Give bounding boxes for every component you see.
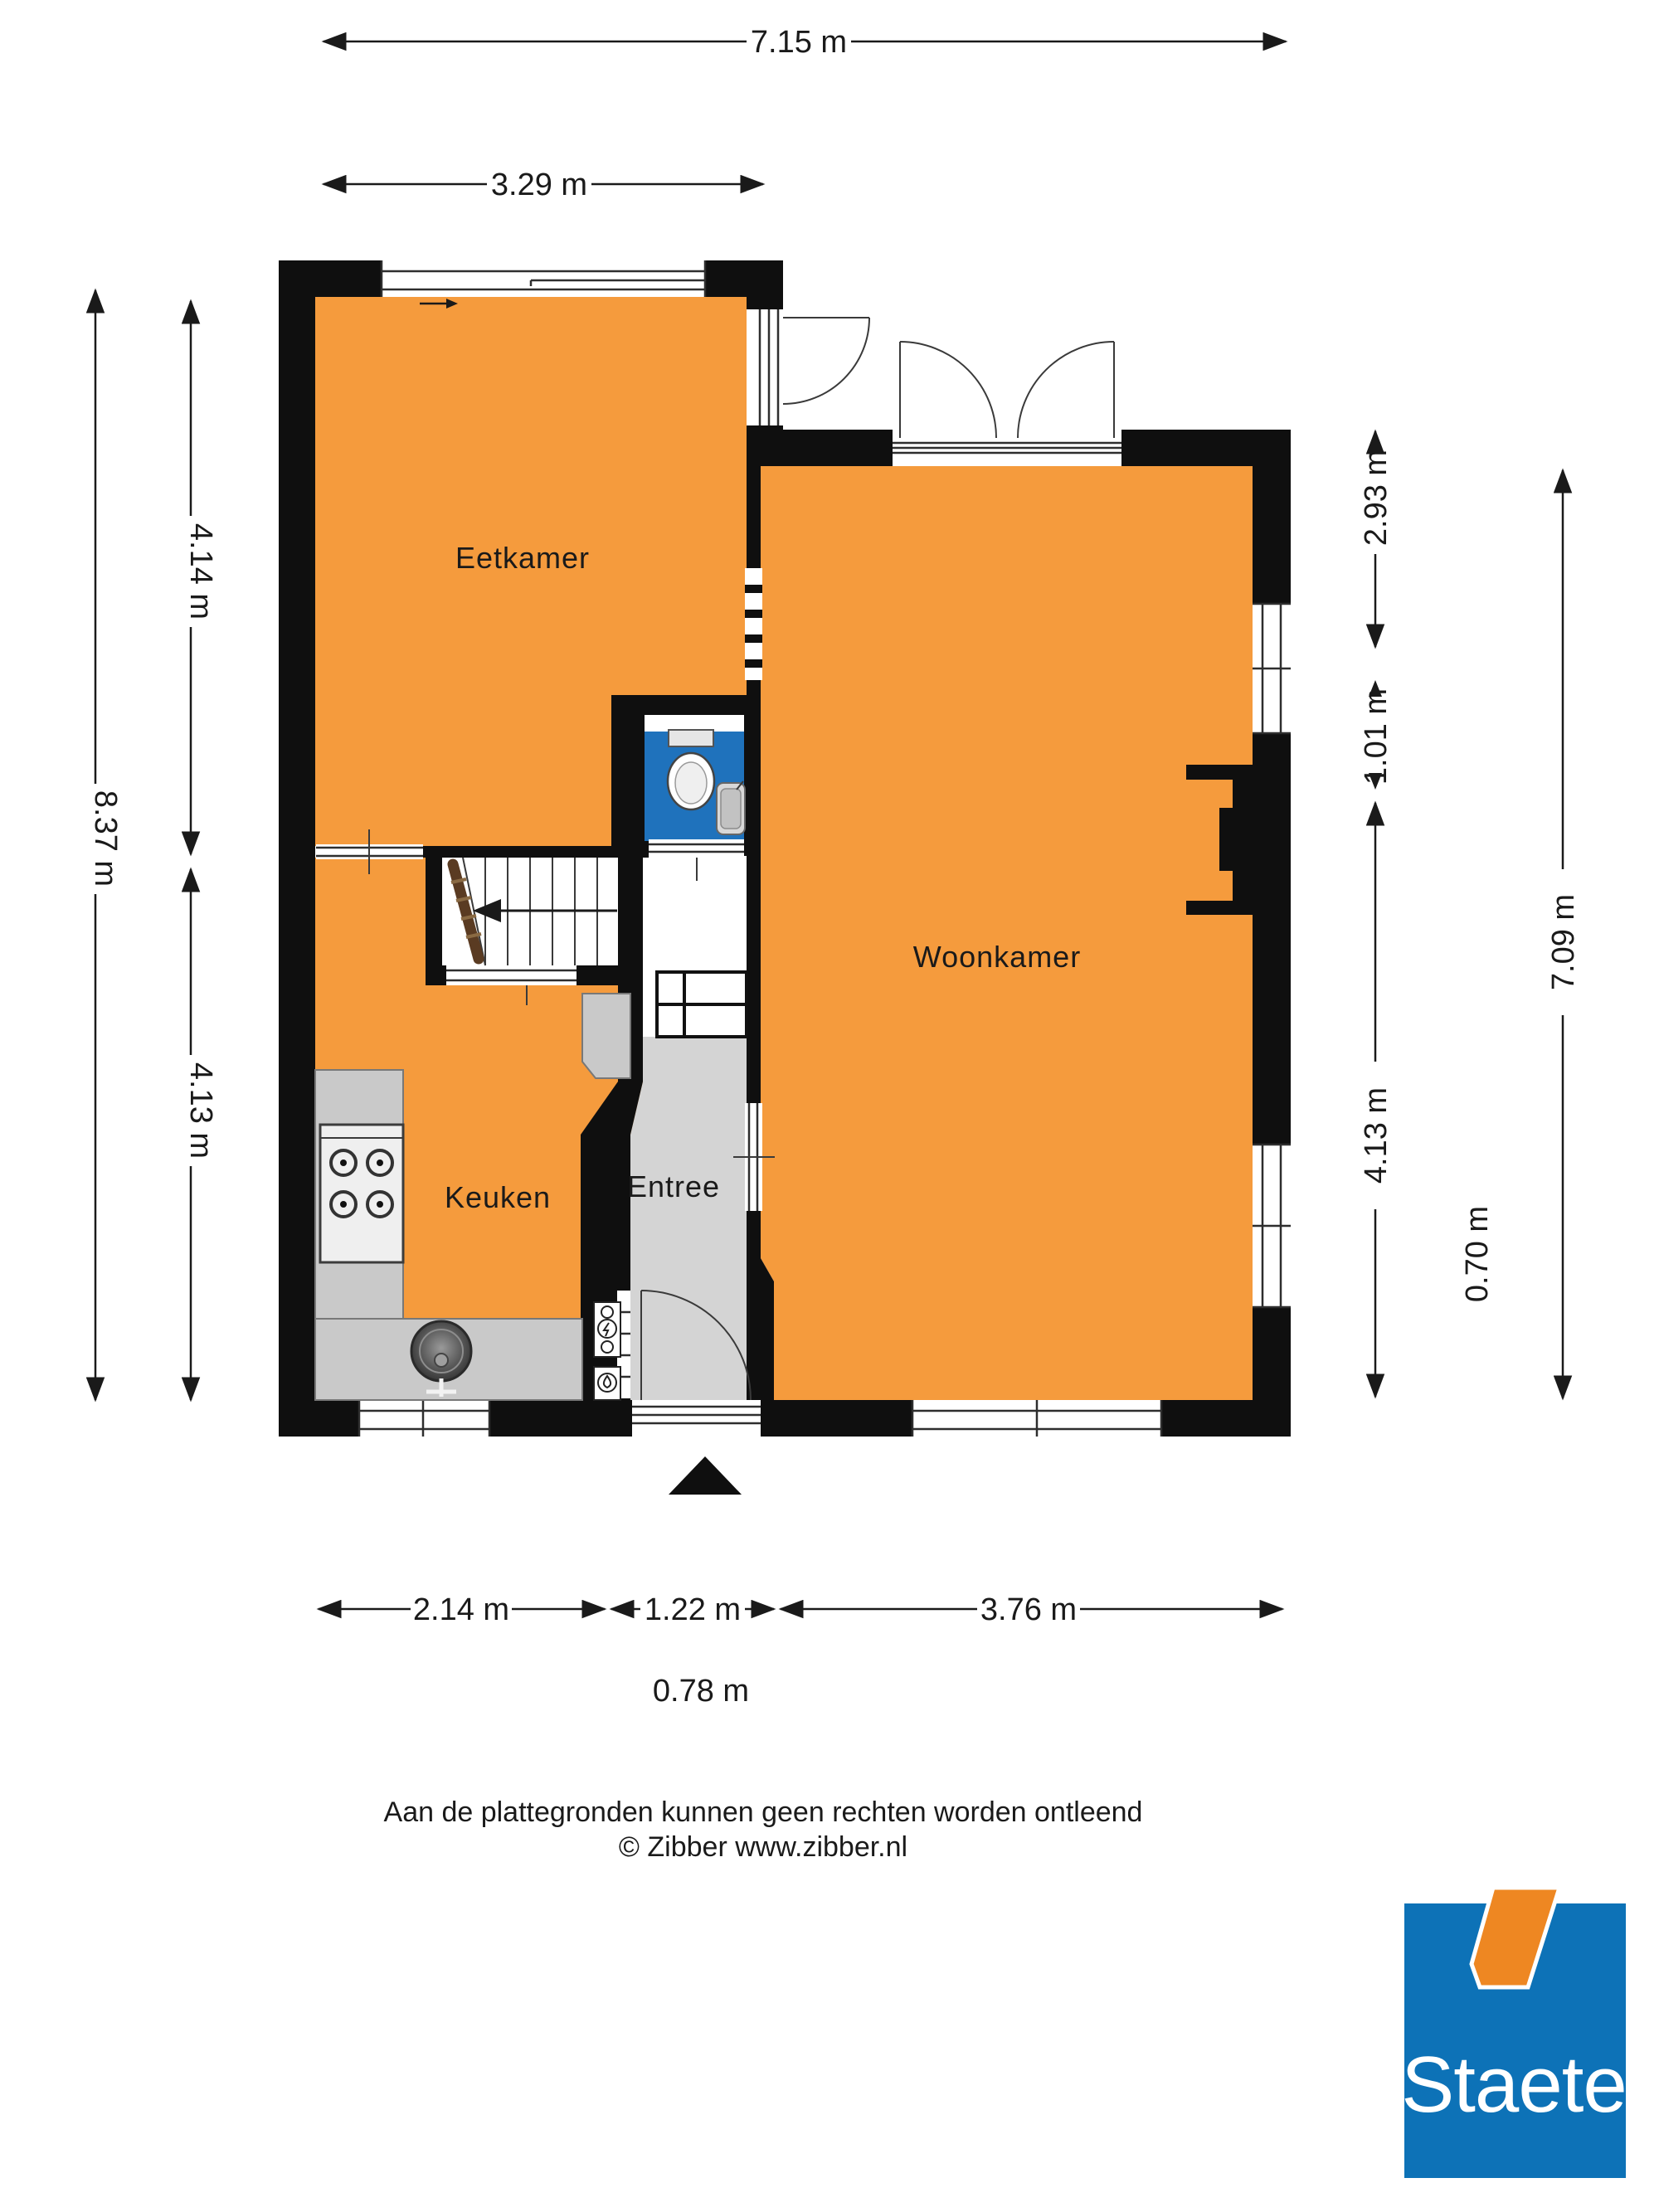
meter-cupboard xyxy=(594,1302,620,1400)
toilet-cistern xyxy=(669,730,713,746)
dim-bottom-door: 0.78 m xyxy=(653,1674,749,1709)
label-eetkamer: Eetkamer xyxy=(455,541,590,575)
wall-bottom-d xyxy=(1161,1400,1291,1437)
label-entree: Entree xyxy=(627,1169,720,1203)
dim-left-lower: 4.13 m xyxy=(183,1062,218,1159)
stairs xyxy=(442,858,618,965)
staete-logo: Staete xyxy=(1401,1888,1627,2178)
wall-top-a xyxy=(279,260,382,297)
wall-bottom-c xyxy=(761,1400,912,1437)
wall-bottom-b xyxy=(489,1400,632,1437)
dim-left-total: 8.37 m xyxy=(88,790,123,887)
copyright-text: © Zibber www.zibber.nl xyxy=(619,1831,907,1863)
wall-toilet-left xyxy=(611,715,645,839)
floorplan-page: Eetkamer Woonkamer Keuken Entree 7.15 m … xyxy=(0,0,1659,2212)
toilet-bowl-inner xyxy=(675,762,707,804)
wall-divider-top2 xyxy=(747,425,783,466)
hall-floor xyxy=(643,858,747,972)
staete-logo-text: Staete xyxy=(1401,2040,1627,2129)
wall-partition-c xyxy=(747,1211,761,1258)
window-keuken-bottom xyxy=(359,1400,489,1437)
wall-right-a xyxy=(1253,466,1291,604)
entree-closet xyxy=(657,972,747,1037)
wall-top-b xyxy=(705,260,783,297)
window-woonkamer-right-lower xyxy=(1253,1145,1291,1307)
double-garden-doors xyxy=(893,342,1121,458)
wall-toilet-top xyxy=(611,695,744,715)
label-woonkamer: Woonkamer xyxy=(913,940,1081,974)
window-eetkamer-top xyxy=(382,260,705,297)
wall-eetkamer-keuken xyxy=(423,846,611,858)
dim-top-total: 7.15 m xyxy=(751,25,847,60)
wall-woonkamer-top-b xyxy=(1121,430,1291,466)
wall-woonkamer-top-a xyxy=(783,430,893,466)
dim-right-upper: 2.93 m xyxy=(1359,450,1394,546)
wall-divider-top1 xyxy=(747,297,783,309)
dim-right-lower: 4.13 m xyxy=(1359,1087,1394,1184)
entrance-arrow xyxy=(669,1456,742,1495)
toilet-room xyxy=(645,715,745,881)
wall-toilet-stub xyxy=(611,839,649,858)
wall-partition-step xyxy=(747,1258,774,1400)
wall-right-b xyxy=(1253,733,1291,1145)
wall-bottom-a xyxy=(279,1400,359,1437)
opening-eetkamer-woonkamer-dashed xyxy=(745,568,762,680)
wall-stairs-bottom-a xyxy=(426,965,446,985)
floorplan-svg: Eetkamer Woonkamer Keuken Entree 7.15 m … xyxy=(0,0,1659,2212)
dim-bottom-keuken: 2.14 m xyxy=(413,1592,509,1627)
dim-right-total: 7.09 m xyxy=(1546,894,1581,990)
wall-stairs-bottom-b xyxy=(577,965,618,985)
stove xyxy=(320,1125,403,1262)
dim-right-extra: 0.70 m xyxy=(1460,1206,1495,1302)
wall-left xyxy=(279,260,315,1437)
entree-floor xyxy=(630,1037,747,1400)
wall-stairs-left xyxy=(426,858,442,965)
window-woonkamer-bottom xyxy=(912,1400,1161,1437)
dim-left-upper: 4.14 m xyxy=(183,523,218,620)
label-keuken: Keuken xyxy=(445,1180,551,1214)
woonkamer-floor xyxy=(761,466,1253,1400)
dim-bottom-woonkamer: 3.76 m xyxy=(980,1592,1077,1627)
footer: Aan de plattegronden kunnen geen rechten… xyxy=(384,1796,1143,1863)
counter-cabinet xyxy=(582,994,630,1078)
toilet-sink-basin xyxy=(721,789,741,829)
wall-partition-a xyxy=(747,466,761,568)
dim-right-mid: 1.01 m xyxy=(1359,688,1394,785)
disclaimer-text: Aan de plattegronden kunnen geen rechten… xyxy=(384,1796,1143,1828)
dim-bottom-entree: 1.22 m xyxy=(645,1592,741,1627)
side-door xyxy=(753,309,869,425)
dim-top-left-section: 3.29 m xyxy=(491,168,587,202)
window-woonkamer-right-upper xyxy=(1253,604,1291,733)
wall-toilet-right xyxy=(744,695,761,856)
